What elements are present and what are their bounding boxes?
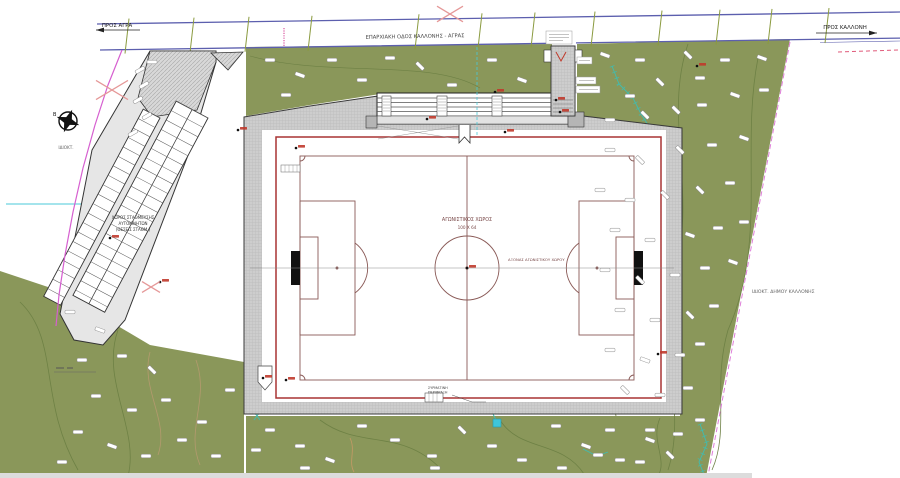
road-name-label: ΕΠΑΡΧΙΑΚΗ ΟΔΟΣ ΚΑΛΛΟΝΗΣ - ΑΓΡΑΣ [366, 33, 465, 41]
water-feature-marker [493, 419, 501, 427]
ownership-left-label: ΙΔΙΟΚΤ. [58, 145, 73, 150]
site-plan-canvas: ΠΡΟΣ ΑΓΡΑ ΠΡΟΣ ΚΑΛΛΟΝΗ ΕΠΑΡΧΙΑΚΗ ΟΔΟΣ ΚΑ… [0, 0, 900, 478]
parking-label-3: (ΘΕΣΕΙΣ ΣΤΑΘΜ.) [116, 227, 151, 232]
fence-note-1: ΣΥΡΜΑΤΙΝΗ [428, 386, 448, 390]
pitch-surround [262, 130, 666, 402]
direction-left-label: ΠΡΟΣ ΑΓΡΑ [102, 23, 133, 29]
arrow-right-icon [869, 31, 877, 36]
north-label: Β [53, 112, 57, 118]
drawing-edge-strip [0, 473, 752, 478]
parking-label-2: ΑΥΤΟΚΙΝΗΤΩΝ [118, 221, 147, 226]
arrow-left-icon [96, 28, 104, 33]
gate-left [544, 50, 551, 62]
fence-note-2: ΠΕΡΙΦΡΑΞΗ [428, 391, 448, 395]
parking-area: ΧΩΡΟΣ ΣΤΑΘΜΕΥΣΗΣ ΑΥΤΟΚΙΝΗΤΩΝ (ΘΕΣΕΙΣ ΣΤΑ… [44, 51, 243, 345]
north-compass: Β [53, 106, 84, 137]
axis-label: ΑΞΟΝΑΣ ΑΓΩΝΙΣΤΙΚΟΥ ΧΩΡΟΥ [508, 257, 565, 262]
pitch-title: ΑΓΩΝΙΣΤΙΚΟΣ ΧΩΡΟΣ [442, 217, 492, 223]
direction-left: ΠΡΟΣ ΑΓΡΑ [96, 23, 140, 32]
direction-right: ΠΡΟΣ ΚΑΛΛΟΝΗ [816, 25, 877, 35]
ownership-right-label: ΙΔΙΟΚΤ. ΔΗΜΟΥ ΚΑΛΛΟΝΗΣ [752, 289, 815, 295]
site-plan-drawing: ΠΡΟΣ ΑΓΡΑ ΠΡΟΣ ΚΑΛΛΟΝΗ ΕΠΑΡΧΙΑΚΗ ΟΔΟΣ ΚΑ… [0, 0, 900, 478]
boundary-dashed-line [838, 50, 898, 52]
parking-label-1: ΧΩΡΟΣ ΣΤΑΘΜΕΥΣΗΣ [112, 215, 155, 220]
pitch-dimensions: 100 Χ 64 [458, 225, 477, 230]
direction-right-label: ΠΡΟΣ ΚΑΛΛΟΝΗ [823, 25, 867, 31]
